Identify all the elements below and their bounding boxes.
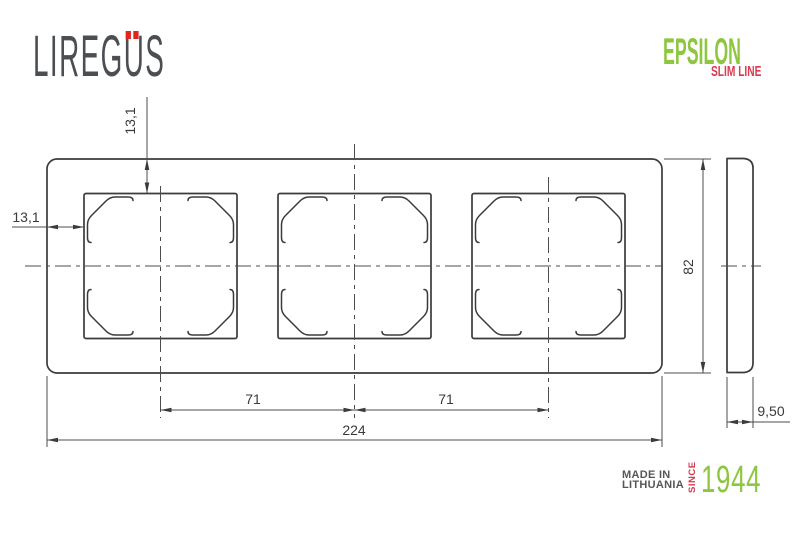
dimension-arrow	[701, 159, 706, 170]
dimension-arrow	[47, 438, 58, 443]
dimension-arrow	[538, 408, 549, 413]
opening-corner-notch	[282, 290, 328, 336]
dimension-arrow	[727, 420, 738, 425]
opening-corner-notch	[88, 197, 134, 243]
dim-total-width-label: 224	[342, 422, 366, 438]
opening-corner-notch	[88, 290, 134, 336]
page: LIREGUS EPSILON SLIM LINE 13,1 13,1 71 7…	[0, 0, 800, 533]
opening-corner-notch	[576, 290, 622, 336]
dim-depth-label: 9,50	[757, 403, 784, 419]
dim-spacing-left-label: 71	[245, 391, 261, 407]
dimension-arrow	[145, 159, 150, 170]
dimension-arrow	[73, 225, 84, 230]
opening-corner-notch	[476, 290, 522, 336]
dimension-arrow	[47, 225, 58, 230]
opening-corner-notch	[188, 197, 234, 243]
dimension-arrow	[355, 408, 366, 413]
dimension-arrow	[161, 408, 172, 413]
dim-total-height-label: 82	[680, 259, 696, 275]
dim-left-inset-label: 13,1	[12, 209, 39, 225]
opening-corner-notch	[282, 197, 328, 243]
opening-corner-notch	[476, 197, 522, 243]
technical-drawing: 13,1 13,1 71 71 224 82 9,50	[0, 0, 800, 533]
founding-year: 1944	[701, 461, 761, 499]
opening-corner-notch	[576, 197, 622, 243]
made-in-text: MADE IN LITHUANIA	[622, 470, 684, 490]
dimension-arrow	[701, 362, 706, 373]
dimension-arrow	[145, 183, 150, 194]
dim-top-inset-label: 13,1	[122, 107, 138, 134]
dim-spacing-right-label: 71	[438, 391, 454, 407]
opening-corner-notch	[382, 290, 428, 336]
opening-corner-notch	[188, 290, 234, 336]
opening-corner-notch	[382, 197, 428, 243]
dimension-arrow	[742, 420, 753, 425]
since-label: SINCE	[687, 461, 699, 493]
dimension-arrow	[651, 438, 662, 443]
dimension-arrow	[344, 408, 355, 413]
